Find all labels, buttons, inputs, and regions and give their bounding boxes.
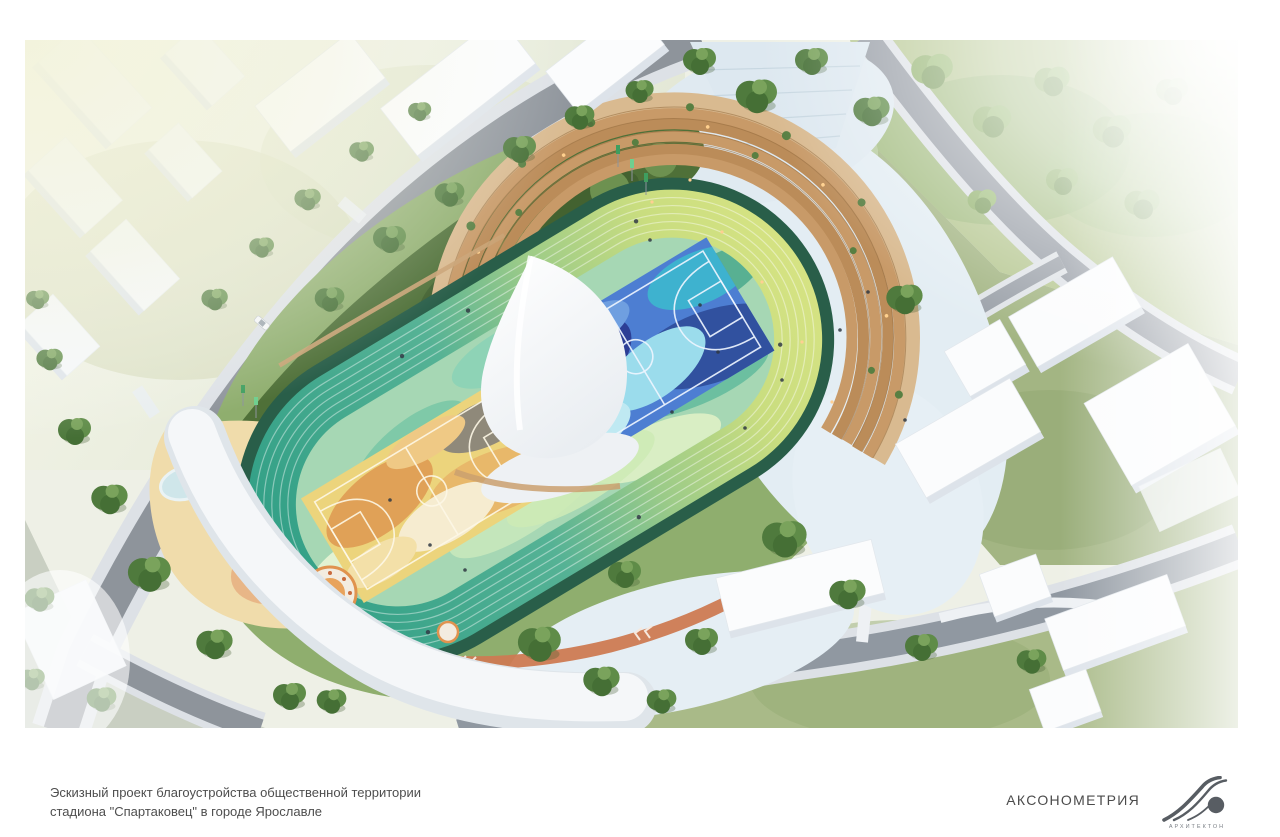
architecton-logo-icon (1160, 776, 1234, 822)
architecton-logo: АРХИТЕКТОН (1160, 776, 1234, 830)
mosaic-circle-small (438, 622, 458, 642)
view-type-label: АКСОНОМЕТРИЯ (1006, 792, 1140, 814)
project-caption: Эскизный проект благоустройства обществе… (50, 783, 421, 821)
caption-line-2: стадиона "Спартаковец" в городе Ярославл… (50, 802, 421, 821)
axonometric-rendering (25, 40, 1238, 728)
caption-line-1: Эскизный проект благоустройства обществе… (50, 783, 421, 802)
presentation-page: Эскизный проект благоустройства обществе… (0, 0, 1280, 837)
footer-right: АКСОНОМЕТРИЯ АРХИТЕКТОН (1006, 776, 1234, 830)
architecton-logo-text: АРХИТЕКТОН (1169, 824, 1225, 830)
